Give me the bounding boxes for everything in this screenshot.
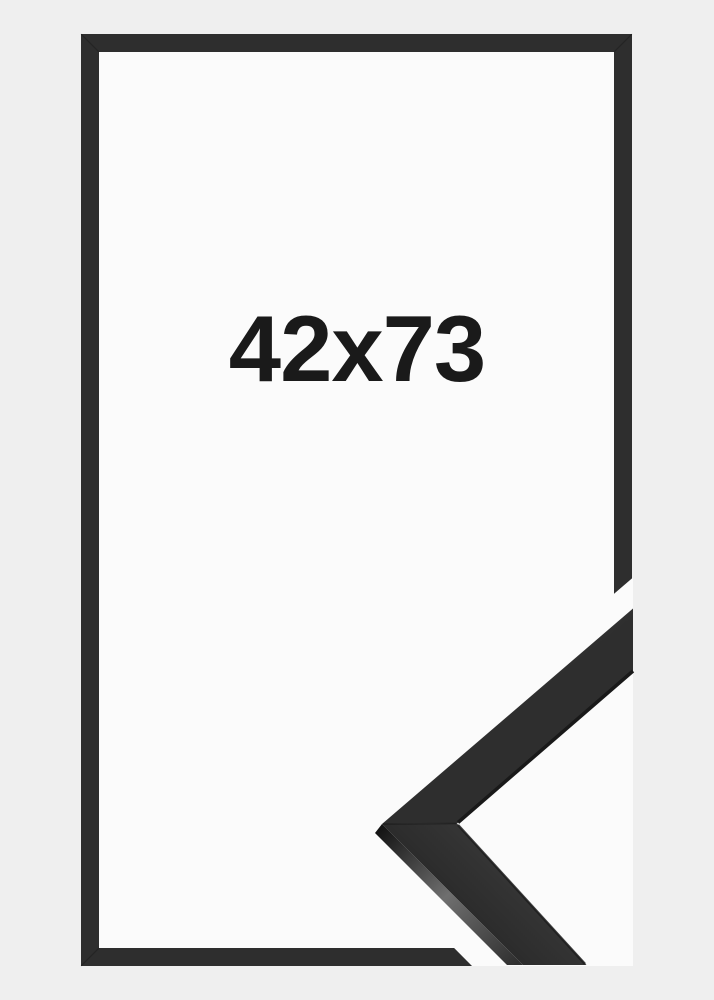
product-image-canvas: 42x73 bbox=[0, 0, 714, 1000]
corner-sample-miter-seam bbox=[383, 824, 456, 825]
frame-size-illustration: 42x73 bbox=[0, 0, 714, 1000]
size-label: 42x73 bbox=[229, 296, 485, 401]
